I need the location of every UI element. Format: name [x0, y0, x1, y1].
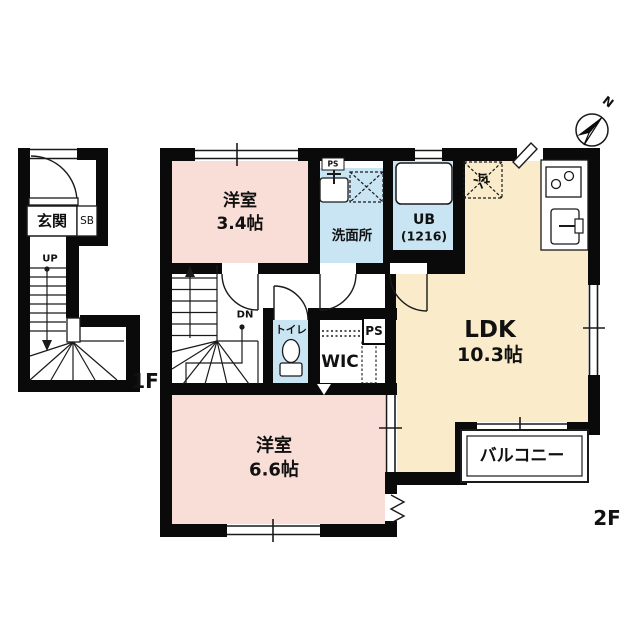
wall	[263, 308, 273, 395]
door-arc-bedroom34	[222, 274, 258, 310]
stair-winder	[73, 342, 95, 380]
kitchen-faucet-knob	[575, 219, 583, 233]
label-dn: DN	[237, 310, 254, 321]
stair-up-dot	[44, 266, 49, 271]
wall	[18, 380, 140, 392]
entrance-door-leaf	[29, 198, 78, 205]
wall	[18, 148, 30, 392]
bathtub-icon	[396, 163, 452, 204]
floor-plan-page: N 玄関 SB UP 1F 洋室 3.4帖 PS 洗面所 UB (1216) 冷…	[0, 0, 639, 640]
stair-winder	[73, 342, 117, 380]
label-floor-2f: 2F	[593, 506, 621, 530]
label-entrance: 玄関	[37, 212, 67, 230]
label-balcony: バルコニー	[480, 446, 565, 466]
wall	[160, 148, 172, 537]
label-washroom: 洗面所	[332, 227, 373, 244]
label-floor-1f: 1F	[131, 369, 159, 393]
label-room34-name: 洋室	[223, 190, 257, 211]
wall	[385, 472, 465, 485]
label-toilet: トイレ	[275, 324, 307, 336]
label-room66-name: 洋室	[256, 435, 292, 457]
label-room34-size: 3.4帖	[216, 213, 263, 234]
floor-plan-canvas: N 玄関 SB UP 1F 洋室 3.4帖 PS 洗面所 UB (1216) 冷…	[0, 0, 639, 640]
door-gap	[390, 263, 427, 274]
label-shoe-box: SB	[80, 215, 94, 227]
door-gap	[274, 308, 308, 320]
wall	[96, 148, 108, 246]
label-ps: PS	[365, 324, 382, 338]
stair-winder	[30, 342, 73, 380]
label-ldk-size: 10.3帖	[457, 343, 523, 366]
label-wic: WIC	[321, 352, 359, 372]
wall	[66, 234, 79, 318]
door-gap	[320, 263, 356, 274]
stair-newel	[67, 318, 80, 342]
room-ldk-lower	[396, 274, 465, 472]
label-ps-top: PS	[328, 160, 339, 169]
door-arc-washroom	[320, 274, 356, 310]
room-western-3_4	[172, 161, 308, 263]
walls-1f	[18, 148, 140, 392]
label-room66-size: 6.6帖	[249, 459, 299, 481]
compass-north-label: N	[600, 93, 617, 110]
stove-icon	[546, 167, 581, 197]
wall	[160, 383, 397, 395]
hanger-pipe-vertical	[362, 342, 376, 383]
wall	[383, 155, 393, 265]
compass: N	[576, 93, 616, 146]
door-gap	[222, 263, 258, 274]
label-ldk: LDK	[464, 317, 517, 343]
wall	[453, 155, 465, 263]
wall	[383, 250, 465, 263]
stair-dn-dot	[239, 324, 244, 329]
label-up: UP	[42, 254, 57, 265]
toilet-bowl-icon	[283, 340, 300, 363]
stairs-2f	[172, 265, 258, 384]
wall	[308, 148, 320, 274]
label-ub-size: (1216)	[401, 229, 447, 244]
label-ub: UB	[413, 212, 435, 228]
entrance-door-arc	[31, 156, 77, 202]
toilet-tank-icon	[280, 363, 302, 376]
